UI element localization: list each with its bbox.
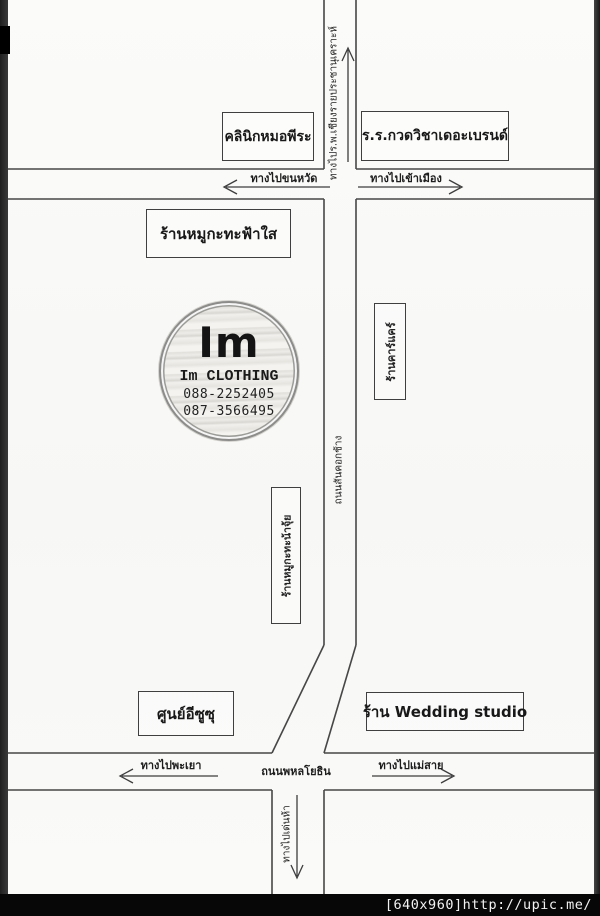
phone-number-1: 088-2252405	[183, 387, 275, 404]
central-road-label: ถนนสันคอกช้าง	[332, 436, 347, 505]
tutoring-school-label: ร.ร.กวดวิชาเดอะเบรนด์	[362, 125, 508, 147]
central-road-right-diagonal	[324, 645, 356, 753]
isuzu-center-label: ศูนย์อีซูซุ	[157, 702, 215, 726]
scan-edge-left	[0, 0, 8, 916]
shop-logo: Im Im CLOTHING 088-2252405 087-3566495	[159, 301, 299, 441]
watermark-bar: [640x960]http://upic.me/	[0, 894, 600, 916]
scan-edge-blob	[0, 26, 10, 54]
watermark-text: [640x960]http://upic.me/	[385, 897, 592, 913]
direction-maesai-label: ทางไปแม่สาย	[379, 756, 444, 774]
scan-edge-right	[594, 0, 600, 916]
direction-top-east-label: ทางไปเข้าเมือง	[370, 169, 442, 187]
landmark-box-tutoring-school: ร.ร.กวดวิชาเดอะเบรนด์	[361, 111, 509, 161]
south-road-label: ทางไปเด่นห้า	[280, 805, 295, 862]
landmark-box-mookata-fahsai: ร้านหมูกะทะฟ้าใส	[146, 209, 291, 258]
car-care-label: ร้านคาร์แคร์	[382, 322, 400, 381]
clinic-label: คลินิกหมอพีระ	[224, 126, 311, 148]
direction-phayao-label: ทางไปพะเยา	[141, 756, 202, 774]
landmark-box-wedding-studio: ร้าน Wedding studio	[366, 692, 524, 731]
mookata-fahsai-label: ร้านหมูกะทะฟ้าใส	[160, 222, 277, 246]
map-canvas: ทางไปร.พ.เชียงรายประชานุเคราะห์ ถนนสันคอ…	[0, 0, 600, 916]
mookata-najui-label: ร้านหมูกะทะน้าจุ้ย	[279, 515, 296, 598]
landmark-box-mookata-najui: ร้านหมูกะทะน้าจุ้ย	[271, 487, 301, 624]
logo-initials: Im	[198, 322, 259, 364]
phone-number-2: 087-3566495	[183, 404, 275, 421]
direction-top-west-label: ทางไปขนหวัด	[251, 169, 318, 187]
logo-phone-numbers: 088-2252405 087-3566495	[183, 387, 275, 421]
logo-shop-name: Im CLOTHING	[179, 368, 278, 385]
landmark-box-car-care: ร้านคาร์แคร์	[374, 303, 406, 400]
wedding-studio-label: ร้าน Wedding studio	[363, 700, 527, 724]
landmark-box-isuzu-center: ศูนย์อีซูซุ	[138, 691, 234, 736]
landmark-box-clinic: คลินิกหมอพีระ	[222, 112, 314, 161]
central-road-left-diagonal	[272, 645, 324, 753]
phahonyothin-road-label: ถนนพหลโยธิน	[261, 762, 331, 780]
north-road-label: ทางไปร.พ.เชียงรายประชานุเคราะห์	[327, 26, 342, 180]
